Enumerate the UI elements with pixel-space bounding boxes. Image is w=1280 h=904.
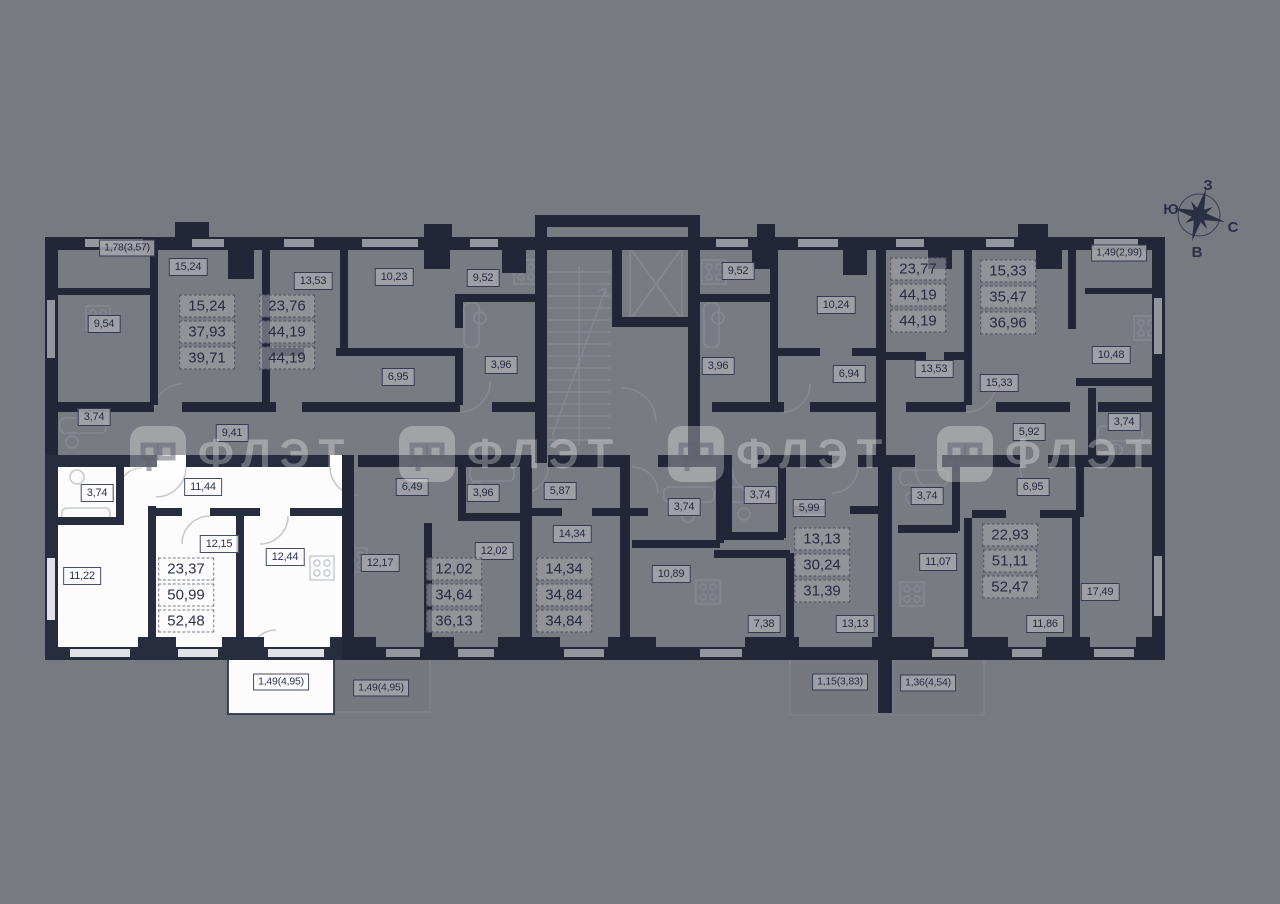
- apartment-area-value: 22,93: [982, 524, 1038, 547]
- apartment-area-value: 13,13: [794, 528, 850, 551]
- apartment-area-value: 52,47: [982, 576, 1038, 599]
- apartment-area-value: 44,19: [890, 310, 946, 333]
- room-area-label: 13,53: [915, 360, 954, 378]
- apartment-info-box: 12,0234,6436,13: [426, 558, 482, 633]
- apartment-area-value: 34,84: [536, 584, 592, 607]
- apartment-area-value: 44,19: [259, 347, 315, 370]
- room-area-label: 9,41: [216, 424, 249, 442]
- apartment-area-value: 34,64: [426, 584, 482, 607]
- area-labels-layer: 1,78(3,57)15,249,5413,5310,239,526,953,9…: [0, 0, 1280, 904]
- apartment-area-value: 39,71: [179, 347, 235, 370]
- room-area-label: 9,54: [88, 315, 121, 333]
- apartment-area-value: 15,24: [179, 295, 235, 318]
- apartment-area-value: 44,19: [890, 284, 946, 307]
- room-area-label: 10,23: [375, 268, 414, 286]
- balcony-area-label: 1,49(4,95): [353, 680, 409, 697]
- apartment-area-value: 30,24: [794, 554, 850, 577]
- room-area-label: 13,53: [294, 272, 333, 290]
- apartment-info-box: 14,3434,8434,84: [536, 558, 592, 633]
- apartment-area-value: 15,33: [980, 260, 1036, 283]
- apartment-area-value: 31,39: [794, 580, 850, 603]
- room-area-label: 3,74: [911, 487, 944, 505]
- selected-apartment[interactable]: [45, 455, 342, 660]
- room-area-label: 10,24: [817, 296, 856, 314]
- apartment-area-value: 23,77: [890, 258, 946, 281]
- apartment-area-value: 51,11: [983, 550, 1037, 573]
- room-area-label: 5,99: [793, 499, 826, 517]
- room-area-label: 9,52: [467, 269, 500, 287]
- room-area-label: 10,48: [1092, 346, 1131, 364]
- apartment-area-value: 12,02: [426, 558, 482, 581]
- room-area-label: 6,94: [833, 365, 866, 383]
- balcony-area-label: 1,78(3,57): [99, 240, 155, 257]
- room-area-label: 3,96: [467, 484, 500, 502]
- floorplan-page: 1,78(3,57)15,249,5413,5310,239,526,953,9…: [0, 0, 1280, 904]
- room-area-label: 3,74: [1108, 413, 1141, 431]
- apartment-area-value: 34,84: [536, 610, 592, 633]
- room-area-label: 15,33: [980, 374, 1019, 392]
- room-area-label: 6,49: [396, 478, 429, 496]
- apartment-area-value: 23,76: [259, 295, 315, 318]
- apartment-area-value: 37,93: [179, 321, 235, 344]
- apartment-area-value: 35,47: [980, 286, 1036, 309]
- room-area-label: 17,49: [1081, 583, 1120, 601]
- balcony-area-label: 1,15(3,83): [812, 674, 868, 691]
- room-area-label: 3,74: [668, 498, 701, 516]
- balcony-area-label: 1,49(2,99): [1091, 245, 1147, 262]
- apartment-info-box: 15,2437,9339,71: [179, 295, 235, 370]
- apartment-area-value: 44,19: [259, 321, 315, 344]
- room-area-label: 5,87: [544, 482, 577, 500]
- apartment-area-value: 36,13: [426, 610, 482, 633]
- balcony-area-label: 1,36(4,54): [900, 675, 956, 692]
- room-area-label: 3,96: [485, 356, 518, 374]
- apartment-info-box: 15,3335,4736,96: [980, 260, 1036, 335]
- room-area-label: 11,07: [919, 553, 957, 571]
- apartment-info-box: 23,7644,1944,19: [259, 295, 315, 370]
- room-area-label: 3,96: [702, 357, 735, 375]
- room-area-label: 15,24: [169, 258, 208, 276]
- apartment-info-box: 22,9351,1152,47: [982, 524, 1038, 599]
- room-area-label: 3,74: [744, 486, 777, 504]
- apartment-info-box: 23,7744,1944,19: [890, 258, 946, 333]
- room-area-label: 6,95: [382, 368, 415, 386]
- room-area-label: 6,95: [1017, 478, 1050, 496]
- apartment-area-value: 36,96: [980, 312, 1036, 335]
- room-area-label: 10,89: [652, 565, 691, 583]
- room-area-label: 9,52: [722, 262, 755, 280]
- balcony-area-label: 1,49(4,95): [253, 674, 309, 691]
- apartment-area-value: 14,34: [536, 558, 592, 581]
- room-area-label: 7,38: [748, 615, 781, 633]
- room-area-label: 3,74: [78, 408, 111, 426]
- room-area-label: 12,17: [361, 554, 400, 572]
- room-area-label: 11,86: [1026, 615, 1064, 633]
- room-area-label: 13,13: [836, 615, 875, 633]
- room-area-label: 14,34: [553, 525, 592, 543]
- room-area-label: 5,92: [1013, 423, 1046, 441]
- apartment-info-box: 13,1330,2431,39: [794, 528, 850, 603]
